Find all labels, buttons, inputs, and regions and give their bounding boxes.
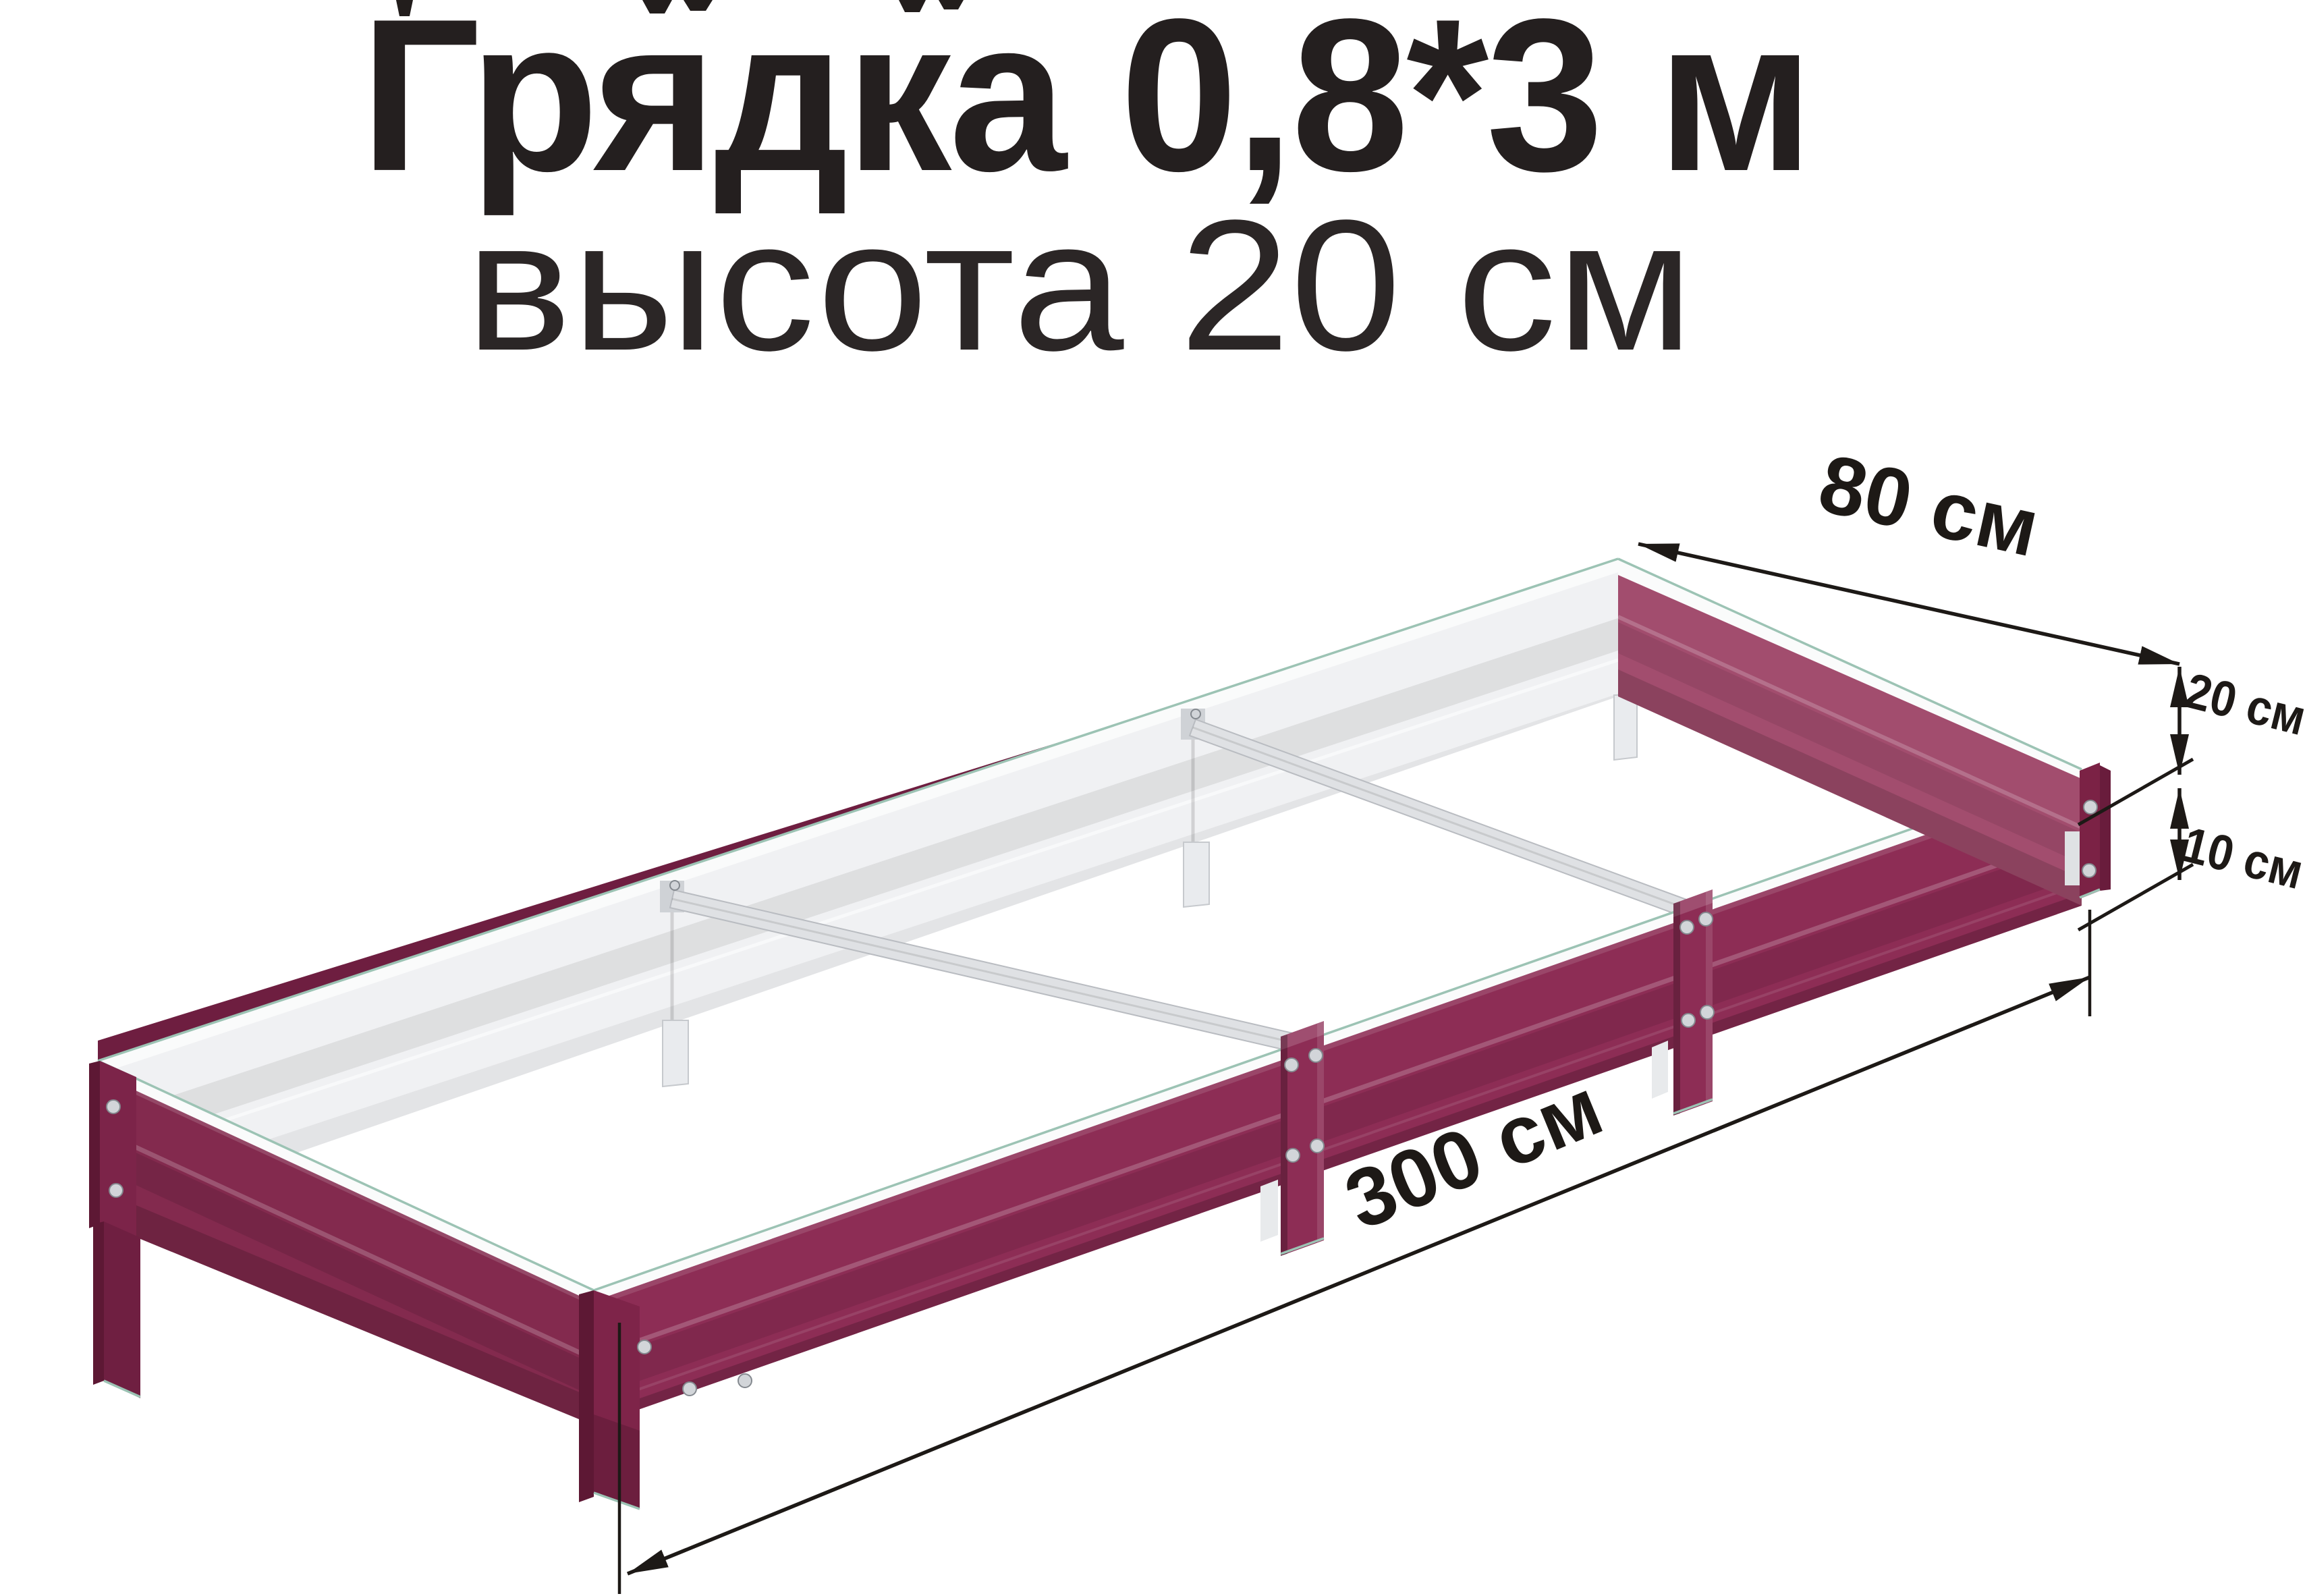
- joint-leg-inner: [1260, 1180, 1278, 1242]
- back-leg: [663, 1020, 688, 1086]
- page-subtitle: высота 20 см: [466, 182, 1694, 389]
- joint-leg-inner: [1652, 1041, 1668, 1099]
- product-illustration: Грядка 0,8*3 м высота 20 см: [0, 0, 2305, 1596]
- back-leg: [1614, 695, 1637, 760]
- dim-height20-label: 20 см: [2180, 662, 2305, 746]
- garden-bed: [89, 559, 2111, 1509]
- corner-front-left: [579, 1290, 640, 1509]
- dim-height10-label: 10 см: [2177, 816, 2305, 900]
- dim-width-label: 80 см: [1811, 437, 2047, 574]
- back-leg: [1184, 842, 1209, 907]
- product-card: Грядка 0,8*3 м высота 20 см: [0, 0, 2305, 1596]
